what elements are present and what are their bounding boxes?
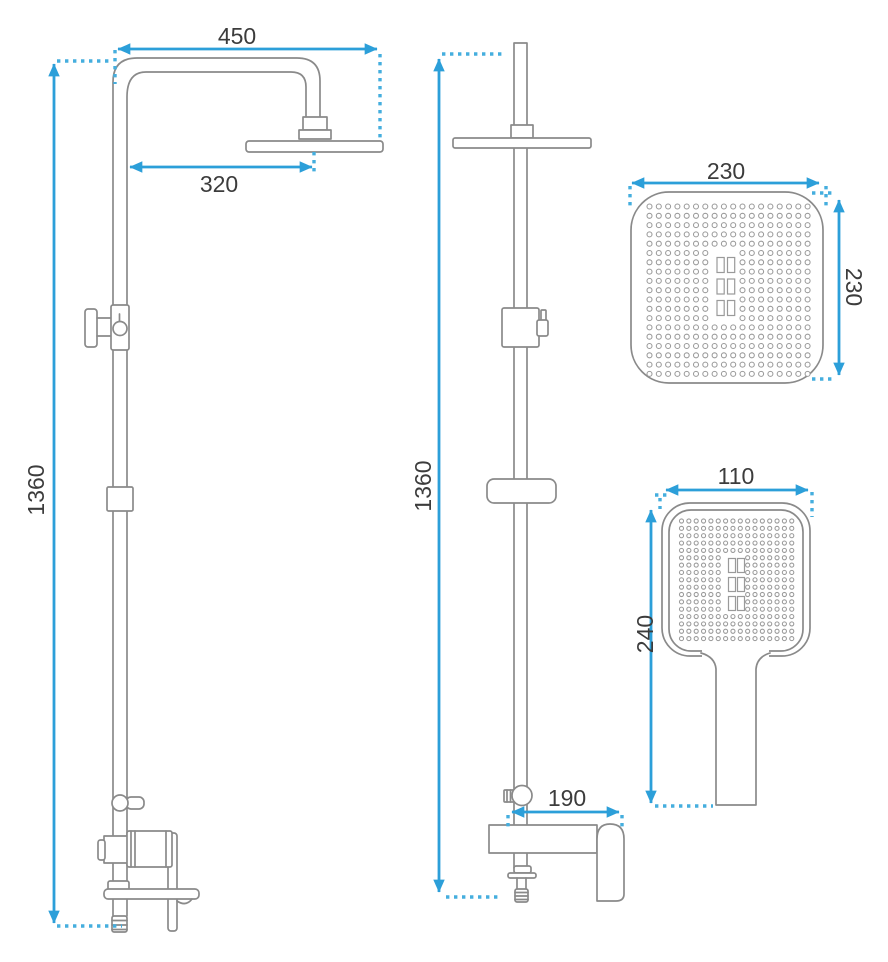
- technical-drawing-canvas: 450 320 1360 1360 190 230 230 110 240: [0, 0, 888, 957]
- front-shelf: [104, 889, 199, 899]
- dim-label-front-height: 1360: [23, 464, 49, 515]
- handshower-neck-mask: [702, 646, 769, 659]
- side-head-connector: [511, 125, 533, 138]
- front-mixer-cap: [98, 840, 105, 860]
- dim-label-overhead-depth: 230: [841, 268, 867, 306]
- ext-front-top: [57, 50, 115, 84]
- side-outlet-pipe: [517, 878, 526, 889]
- front-head-collar: [299, 130, 331, 139]
- side-view: [453, 43, 624, 902]
- front-wall-bracket: [85, 309, 97, 347]
- dim-label-side-spout-reach: 190: [548, 785, 586, 811]
- side-diverter-knob: [512, 786, 532, 806]
- side-outlet-nut: [514, 866, 531, 873]
- hand-shower-view: [662, 503, 810, 805]
- front-diverter-knob: [112, 795, 128, 811]
- front-riser-inner: [127, 72, 306, 916]
- side-soap-dish: [487, 479, 556, 503]
- side-outlet-flange: [508, 873, 536, 878]
- front-head-connector: [303, 117, 327, 130]
- dim-label-front-arm-width: 450: [218, 23, 256, 49]
- dim-label-side-height: 1360: [410, 460, 436, 511]
- side-rain-head-plate: [453, 138, 591, 148]
- side-slider-block: [502, 308, 539, 347]
- front-mixer-body: [104, 836, 128, 863]
- dim-label-handshower-length: 240: [632, 615, 658, 653]
- shower-set-dimension-drawing: 450 320 1360 1360 190 230 230 110 240: [0, 0, 888, 957]
- side-riser-pipe: [514, 43, 527, 868]
- side-mixer-body: [489, 825, 597, 853]
- side-slider-knob: [537, 320, 548, 336]
- dimension-labels: 450 320 1360 1360 190 230 230 110 240: [23, 23, 867, 811]
- front-slider-knob: [113, 322, 127, 336]
- front-bracket-arm: [97, 318, 111, 336]
- handshower-handle: [701, 653, 770, 805]
- dim-label-handshower-width: 110: [718, 463, 755, 489]
- side-mixer-spout-end: [597, 824, 624, 901]
- front-rain-head-plate: [246, 141, 383, 152]
- dim-label-front-head-offset: 320: [200, 171, 238, 197]
- front-mid-coupling: [107, 487, 133, 511]
- dim-label-overhead-width: 230: [707, 158, 745, 184]
- overhead-shower-top-view: [631, 192, 823, 383]
